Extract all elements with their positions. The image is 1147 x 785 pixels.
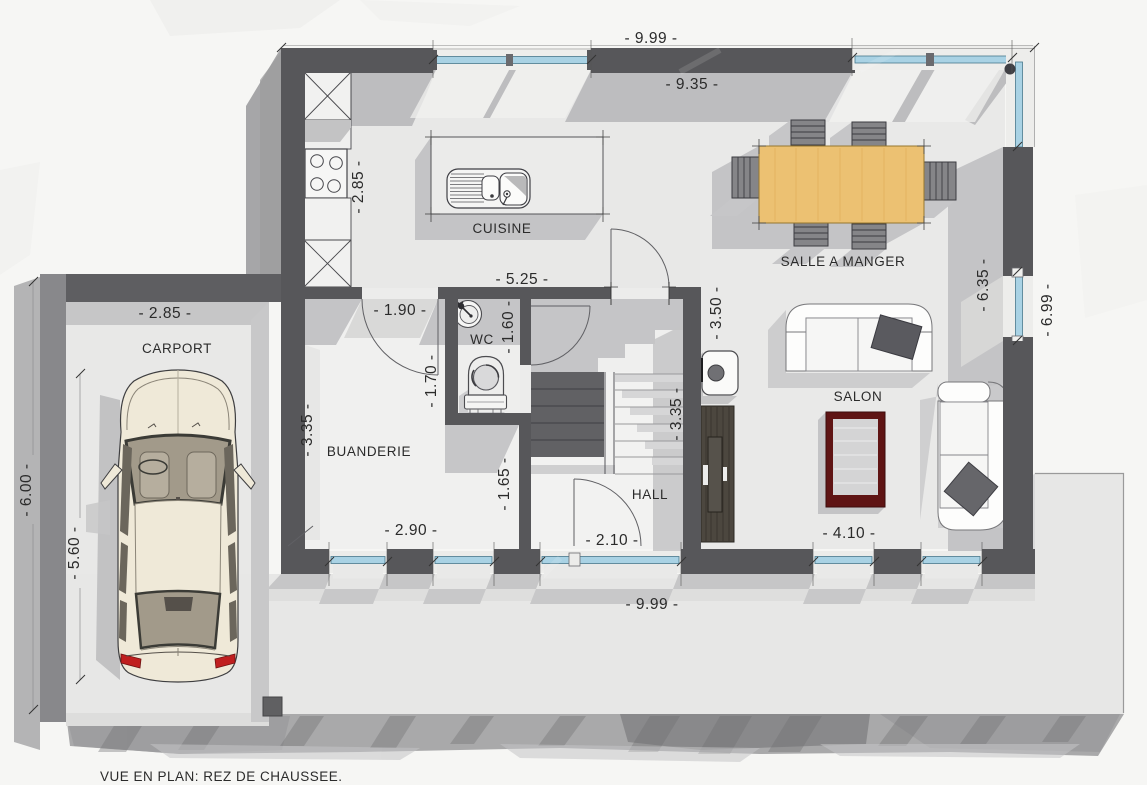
svg-text:- 3.35 -: - 3.35 - (299, 403, 316, 456)
svg-text:HALL: HALL (632, 487, 668, 502)
svg-text:- 9.35 -: - 9.35 - (665, 76, 718, 93)
svg-text:- 9.99 -: - 9.99 - (625, 596, 678, 613)
svg-text:- 6.00 -: - 6.00 - (18, 463, 35, 516)
svg-text:- 2.90 -: - 2.90 - (384, 522, 437, 539)
svg-text:- 5.25 -: - 5.25 - (495, 271, 548, 288)
svg-text:- 6.99 -: - 6.99 - (1039, 283, 1056, 336)
svg-text:- 3.50 -: - 3.50 - (708, 286, 725, 339)
svg-text:- 9.99 -: - 9.99 - (624, 30, 677, 47)
svg-text:CARPORT: CARPORT (142, 341, 212, 356)
svg-text:- 2.85 -: - 2.85 - (138, 305, 191, 322)
svg-text:SALLE A MANGER: SALLE A MANGER (781, 254, 906, 269)
svg-text:- 5.60 -: - 5.60 - (66, 526, 83, 579)
svg-text:CUISINE: CUISINE (473, 221, 532, 236)
svg-text:- 1.70 -: - 1.70 - (423, 354, 440, 407)
svg-text:WC: WC (470, 332, 494, 347)
svg-text:- 1.60 -: - 1.60 - (500, 300, 517, 353)
svg-text:- 2.85 -: - 2.85 - (350, 160, 367, 213)
svg-text:- 1.65 -: - 1.65 - (496, 457, 513, 510)
svg-text:SALON: SALON (834, 389, 883, 404)
svg-text:- 4.10 -: - 4.10 - (822, 525, 875, 542)
svg-text:BUANDERIE: BUANDERIE (327, 444, 411, 459)
svg-text:- 6.35 -: - 6.35 - (975, 258, 992, 311)
svg-text:- 3.35 -: - 3.35 - (668, 387, 685, 440)
svg-text:- 1.90 -: - 1.90 - (373, 302, 426, 319)
svg-text:VUE EN PLAN: REZ DE CHAUSSEE.: VUE EN PLAN: REZ DE CHAUSSEE. (100, 769, 343, 784)
svg-text:- 2.10 -: - 2.10 - (585, 532, 638, 549)
